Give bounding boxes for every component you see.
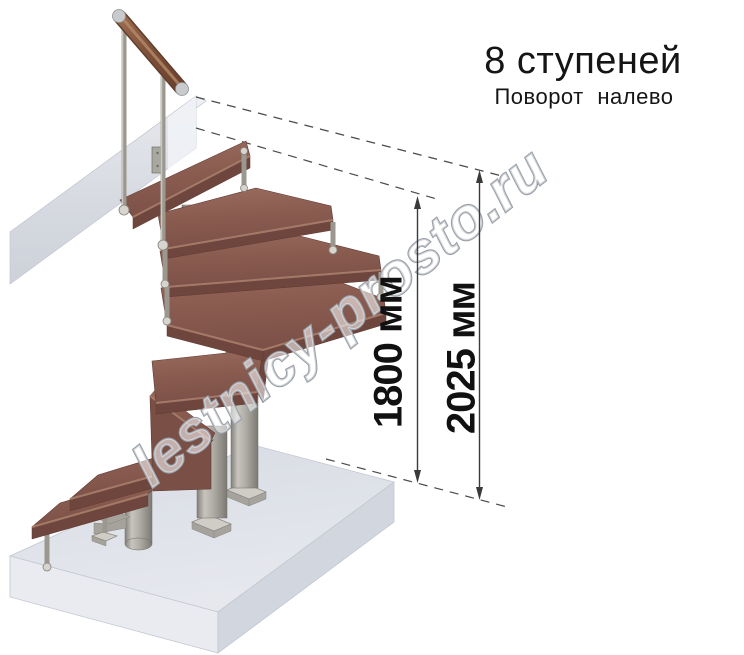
handrail-cap-bottom bbox=[176, 83, 189, 96]
page-title: 8 ступеней bbox=[484, 40, 682, 82]
page-subtitle: Поворот налево bbox=[494, 84, 673, 109]
handrail-cap-top bbox=[113, 10, 126, 23]
staircase-diagram-page: lestnicy-prosto.ru 1800 мм 2025 мм 8 сту… bbox=[0, 0, 744, 655]
dimension-label-2025: 2025 мм bbox=[440, 282, 484, 434]
staircase-diagram: lestnicy-prosto.ru 1800 мм 2025 мм 8 сту… bbox=[0, 0, 744, 655]
dimension-label-1800: 1800 мм bbox=[367, 276, 411, 428]
